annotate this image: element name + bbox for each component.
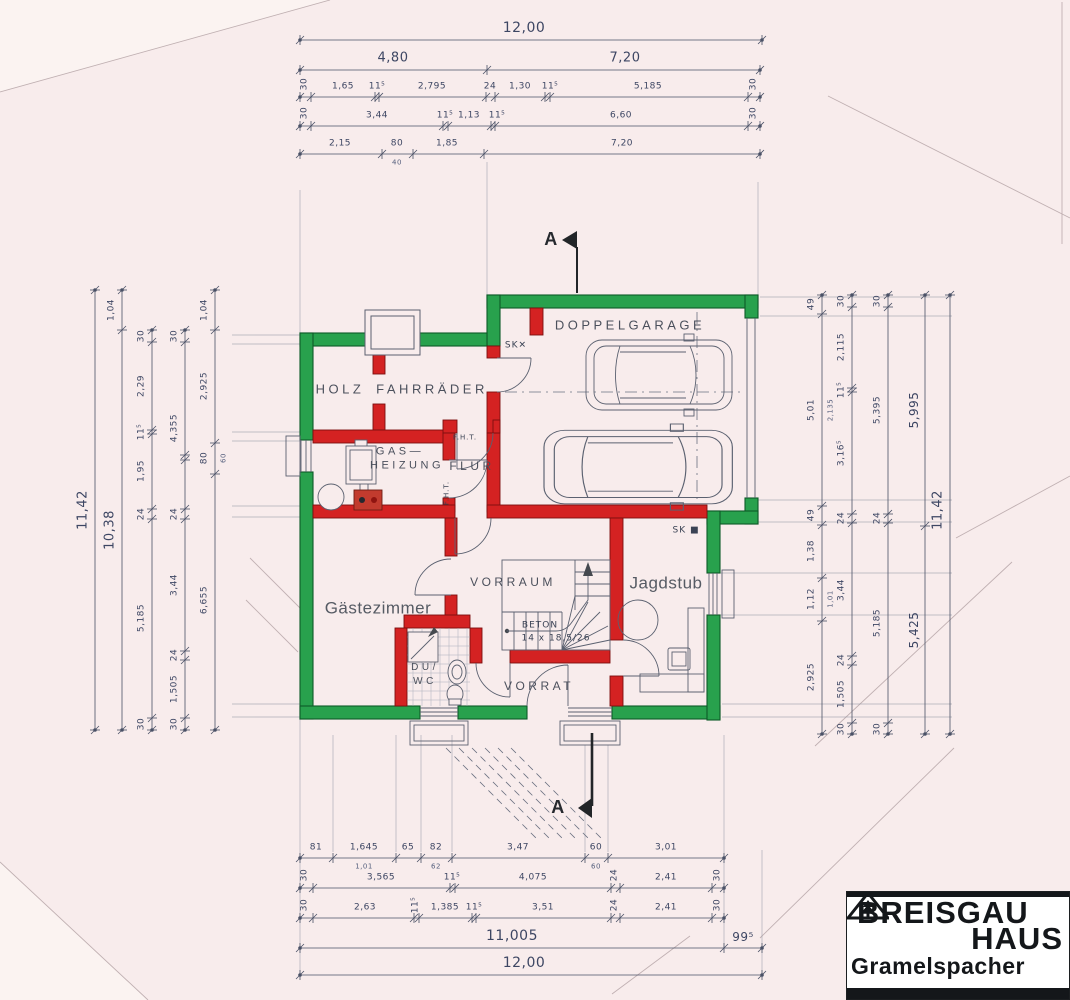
round-table (618, 600, 658, 640)
section-line-a (562, 231, 592, 818)
logo-bottom-bar (847, 988, 1069, 999)
car-top-view (544, 334, 732, 510)
chimney (365, 310, 420, 355)
logo-line3: Gramelspacher (847, 954, 1069, 978)
stair-direction-arrow (583, 562, 593, 576)
wc-fixtures (407, 627, 470, 706)
floor-plan-drawing (0, 0, 1070, 1000)
company-logo: BREISGAU HAUS Gramelspacher (846, 891, 1070, 1000)
gas-boiler (318, 440, 382, 510)
section-flag-top (562, 231, 577, 249)
floorplan-page: HOLZFAHRRÄDERDOPPELGARAGEGAS—HEIZUNGFLUR… (0, 0, 1070, 1000)
logo-line2: HAUS (971, 924, 1063, 953)
staircase (502, 560, 610, 650)
stool (668, 648, 690, 670)
jagdstub-furniture (618, 600, 704, 692)
entrance-steps-dashed (446, 748, 601, 838)
